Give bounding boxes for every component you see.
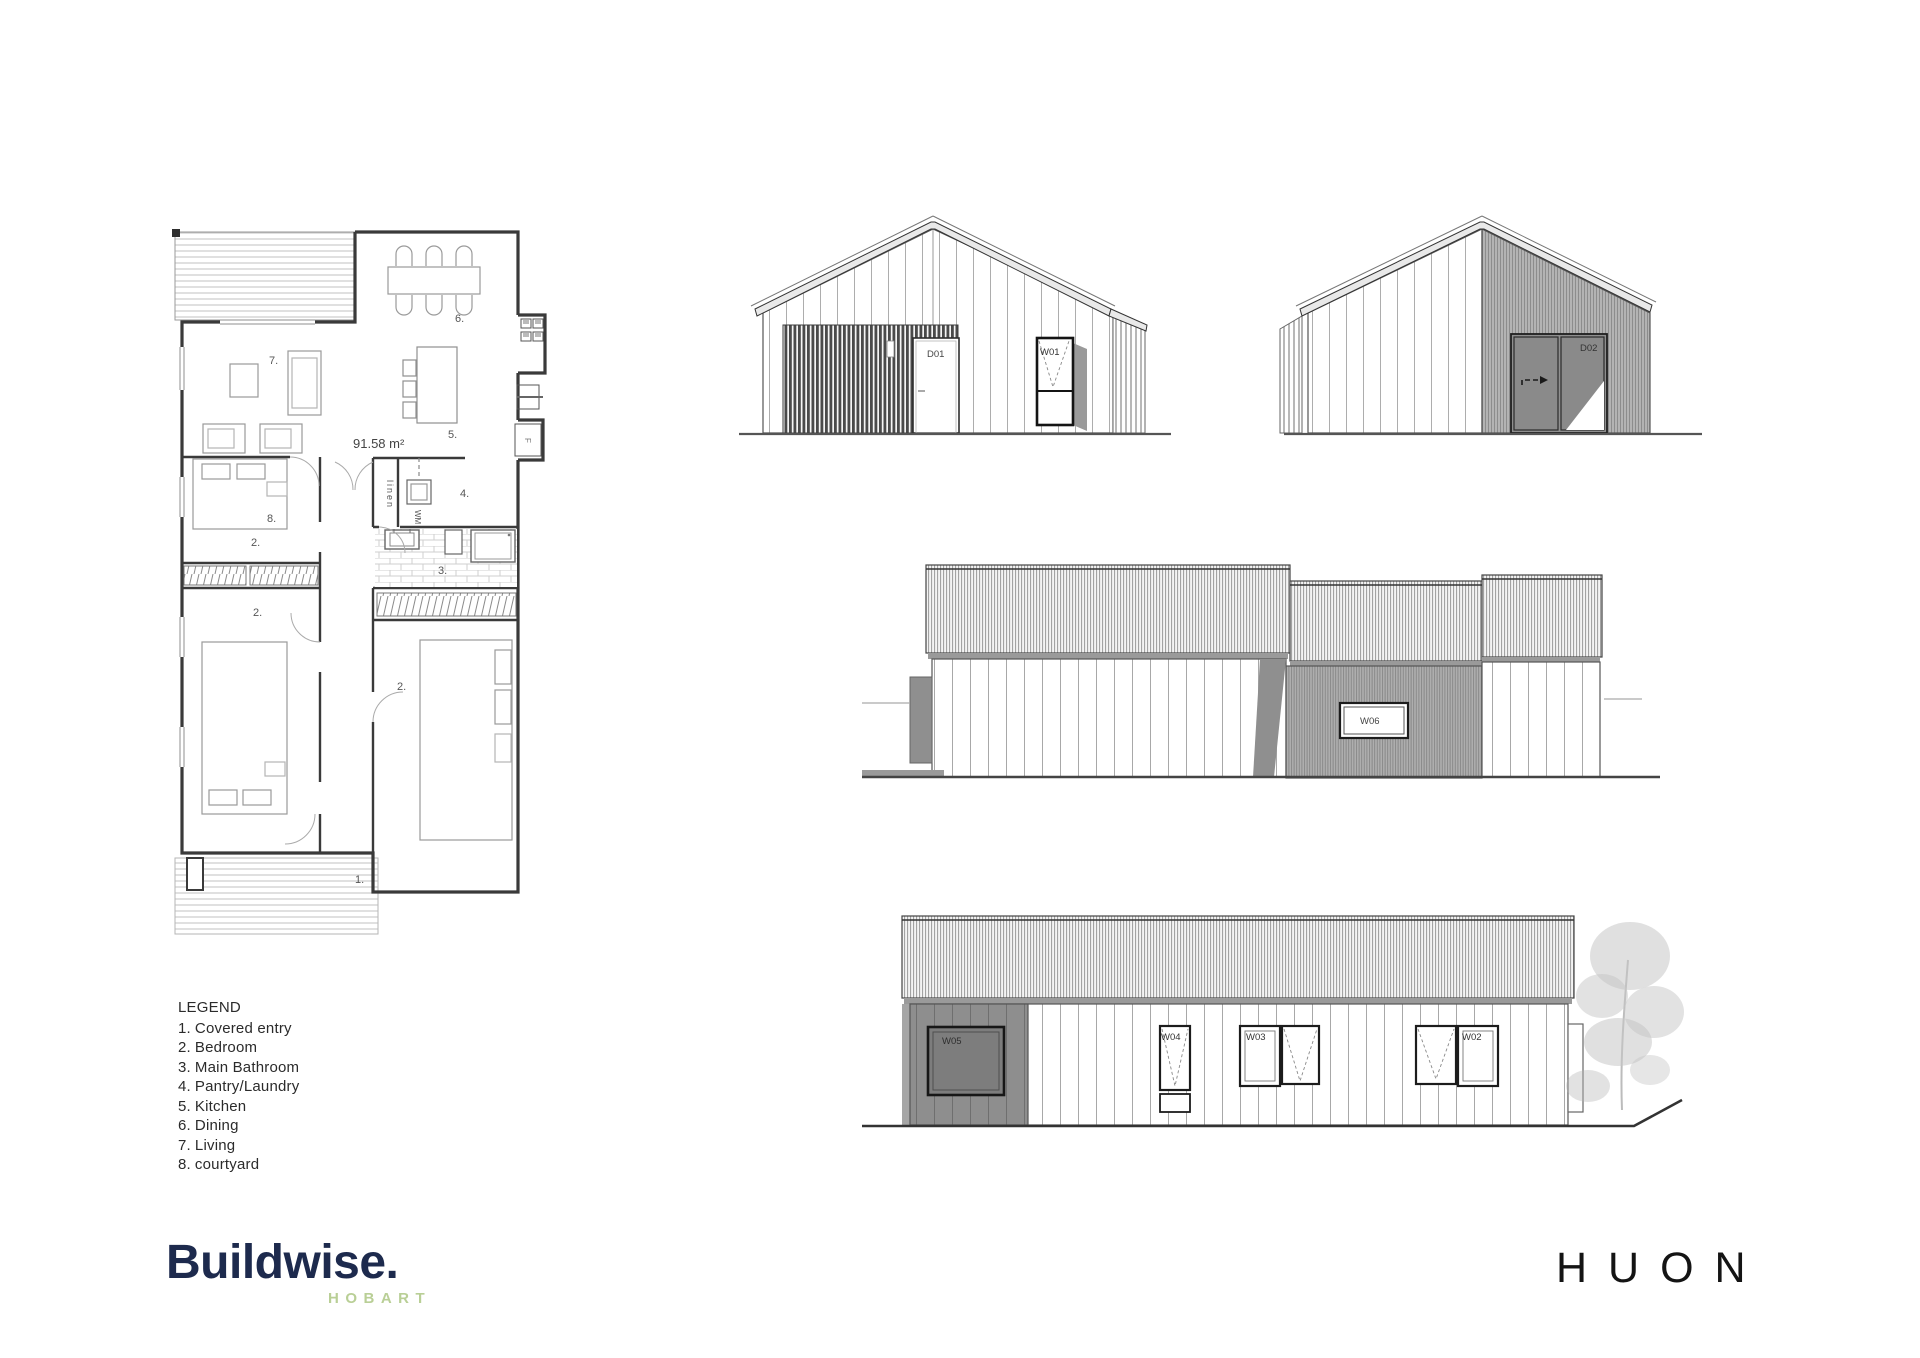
side-window-w06: W06	[1340, 703, 1408, 738]
w05-label: W05	[942, 1036, 962, 1047]
wm-label: WM	[413, 510, 422, 525]
d02-label: D02	[1580, 343, 1597, 354]
street-window-w02: W02	[1416, 1026, 1498, 1086]
rear-wall-left	[1308, 229, 1482, 433]
kitchen-island	[403, 347, 457, 423]
legend-item: 5.Kitchen	[178, 1097, 299, 1117]
front-slat-light	[887, 341, 894, 357]
courtyard-deck	[172, 229, 355, 320]
elevation-rear: D02	[1278, 213, 1718, 443]
street-window-w04: W04	[1160, 1026, 1190, 1112]
label-entry: 1.	[355, 874, 364, 886]
pantry-laundry	[407, 458, 431, 504]
front-right-wing	[1113, 313, 1145, 433]
side-wall-left	[932, 659, 1286, 777]
legend-item: 2.Bedroom	[178, 1038, 299, 1058]
w04-label: W04	[1161, 1032, 1181, 1043]
bed-3	[420, 640, 512, 840]
label-courtyard: 8.	[267, 513, 276, 525]
side-wall-right	[1482, 662, 1600, 777]
legend-item: 1.Covered entry	[178, 1019, 299, 1039]
door-arcs	[285, 457, 405, 844]
legend: LEGEND 1.Covered entry 2.Bedroom 3.Main …	[178, 998, 299, 1175]
bed-2	[202, 642, 287, 814]
legend-title: LEGEND	[178, 998, 299, 1018]
label-bathroom: 3.	[438, 565, 447, 577]
w03-label: W03	[1246, 1032, 1266, 1043]
dining-table	[388, 246, 480, 315]
front-window-w01: W01	[1037, 338, 1087, 431]
rear-left-wing	[1280, 316, 1302, 433]
living-furniture	[203, 351, 321, 453]
side-utility-box	[910, 677, 932, 763]
label-living: 7.	[269, 355, 278, 367]
street-window-w05: W05	[928, 1027, 1004, 1095]
fridge-label: F	[523, 438, 532, 443]
legend-item: 6.Dining	[178, 1116, 299, 1136]
label-dining: 6.	[455, 313, 464, 325]
legend-item: 7.Living	[178, 1136, 299, 1156]
area-label: 91.58 m²	[353, 436, 405, 451]
street-roof	[902, 916, 1574, 1004]
w01-label: W01	[1040, 347, 1060, 358]
label-pantry: 4.	[460, 488, 469, 500]
label-bedroom1: 2.	[251, 537, 260, 549]
legend-item: 3.Main Bathroom	[178, 1058, 299, 1078]
street-window-w03: W03	[1240, 1026, 1319, 1086]
side-roof	[926, 565, 1602, 666]
entry-sidelight	[187, 858, 203, 890]
w02-label: W02	[1462, 1032, 1482, 1043]
label-bedroom3: 2.	[397, 681, 406, 693]
brand-logo: Buildwise. HOBART	[166, 1238, 431, 1307]
brand-location: HOBART	[328, 1290, 431, 1307]
label-kitchen: 5.	[448, 429, 457, 441]
front-door-d01: D01	[913, 338, 959, 433]
legend-item: 8.courtyard	[178, 1155, 299, 1175]
rear-door-d02: D02	[1511, 334, 1607, 433]
w06-label: W06	[1360, 716, 1380, 727]
linen-label: linen	[385, 480, 395, 509]
floor-plan: 8. 7. 6. 5. 4. 3. 2. 2. 2. 1. 91.58 m² l…	[165, 222, 555, 937]
elevation-front: D01 W01	[735, 213, 1175, 443]
street-tree	[1566, 922, 1684, 1110]
entry-deck	[175, 858, 378, 934]
brand-wordmark: Buildwise.	[166, 1238, 431, 1288]
sheet-title: HUON	[1556, 1244, 1767, 1293]
bathroom	[375, 529, 517, 587]
elevation-street: W05 W04 W03 W02	[862, 900, 1692, 1150]
label-bedroom2: 2.	[253, 607, 262, 619]
elevation-side: W06	[862, 555, 1662, 787]
d01-label: D01	[927, 349, 944, 360]
legend-item: 4.Pantry/Laundry	[178, 1077, 299, 1097]
